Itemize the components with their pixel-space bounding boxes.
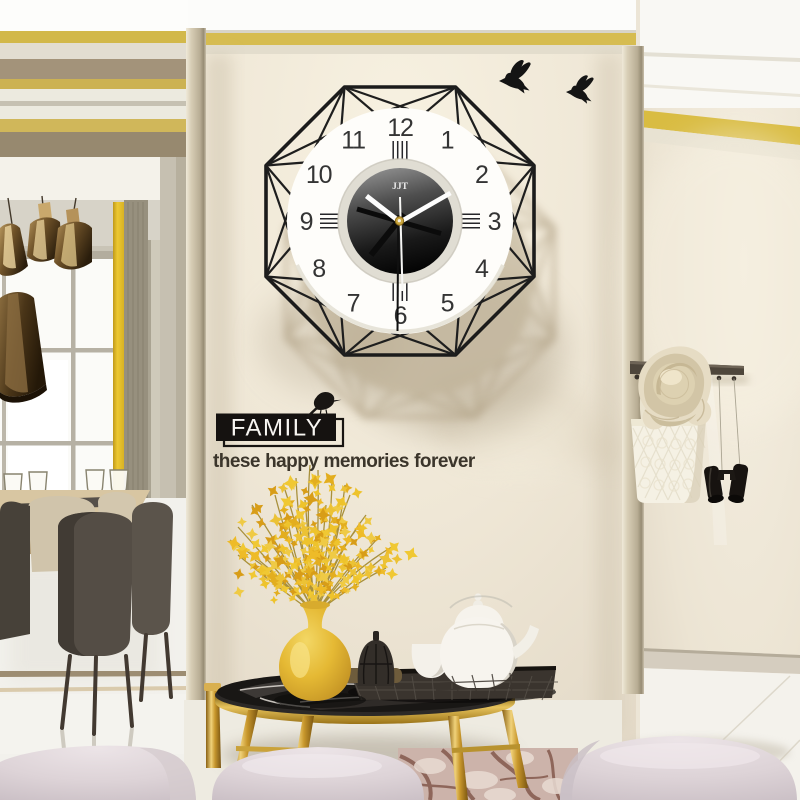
svg-text:4: 4: [475, 255, 489, 283]
svg-text:5: 5: [441, 289, 454, 317]
svg-text:12: 12: [387, 114, 413, 142]
svg-text:7: 7: [347, 289, 360, 317]
svg-text:9: 9: [300, 208, 313, 236]
svg-text:1: 1: [441, 127, 454, 155]
svg-text:JJT: JJT: [392, 182, 409, 192]
svg-text:6: 6: [394, 302, 407, 330]
svg-text:11: 11: [341, 127, 365, 155]
svg-text:3: 3: [488, 208, 501, 236]
svg-text:FAMILY: FAMILY: [231, 415, 324, 442]
svg-text:these happy memories forever: these happy memories forever: [213, 451, 476, 472]
svg-text:10: 10: [306, 161, 332, 189]
svg-text:8: 8: [312, 255, 325, 283]
svg-text:2: 2: [475, 161, 488, 189]
